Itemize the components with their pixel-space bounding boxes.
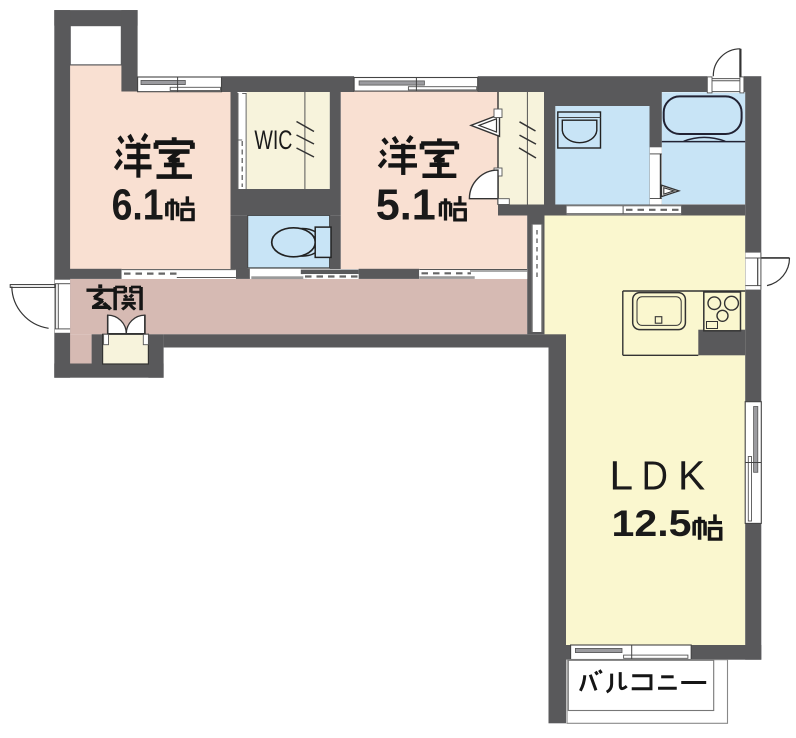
svg-text:K: K — [678, 452, 705, 498]
svg-text:L: L — [609, 452, 633, 498]
svg-text:12.5: 12.5 — [612, 502, 692, 544]
svg-text:5.1: 5.1 — [376, 180, 436, 229]
svg-text:D: D — [642, 452, 668, 498]
svg-text:WIC: WIC — [254, 125, 292, 155]
svg-text:6.1: 6.1 — [112, 180, 164, 229]
